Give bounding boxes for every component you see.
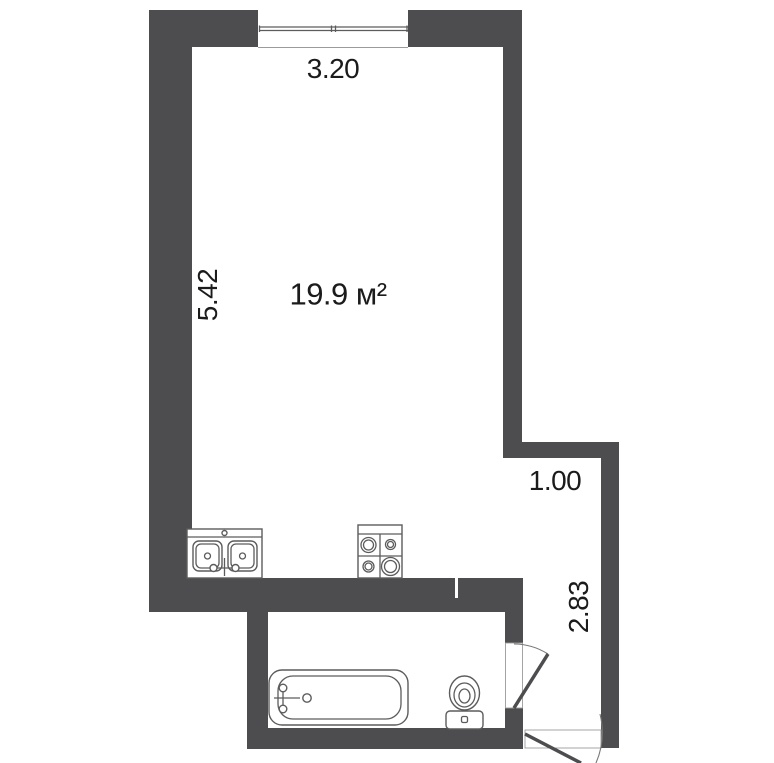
entrance-door-icon <box>525 714 602 763</box>
bathtub-icon <box>269 670 408 725</box>
floor-plan-drawing <box>0 0 774 763</box>
wall-left <box>149 10 192 612</box>
wall-bathroom-right-top <box>505 612 523 643</box>
kitchen-sink-icon <box>187 529 262 578</box>
wall-bathroom-right-bottom <box>505 708 523 730</box>
toilet-icon <box>446 676 483 729</box>
wall-right-hallway <box>601 442 619 748</box>
bathtub-faucet-handle-bottom <box>279 705 287 713</box>
stove-icon <box>358 525 402 578</box>
entrance-door-leaf <box>525 734 581 763</box>
wall-bathroom-bottom <box>247 728 523 749</box>
toilet-tank <box>446 711 483 729</box>
dimension-top-label: 3.20 <box>307 55 360 83</box>
wall-right-main <box>503 10 522 458</box>
floor-plan: 3.20 5.42 19.9 м² 1.00 2.83 <box>0 0 774 763</box>
bathroom-door-icon <box>506 643 549 708</box>
wall-main-bottom <box>149 578 523 612</box>
walls <box>149 10 619 749</box>
sink-faucet-mount <box>222 531 227 536</box>
bathtub-faucet-handle-top <box>279 684 287 692</box>
bathroom-door-arc <box>514 644 548 654</box>
window-icon <box>258 26 408 48</box>
wall-joint-notch <box>455 578 458 598</box>
bathroom-door-leaf <box>514 654 548 708</box>
sink-faucet-handle-left <box>210 565 217 572</box>
bathtub-drain <box>303 694 311 702</box>
dimension-niche-label: 1.00 <box>529 467 582 495</box>
dimension-right-label: 2.83 <box>565 581 593 634</box>
room-area-label: 19.9 м² <box>289 279 386 310</box>
sink-faucet-handle-right <box>232 565 239 572</box>
dimension-left-label: 5.42 <box>194 269 222 322</box>
